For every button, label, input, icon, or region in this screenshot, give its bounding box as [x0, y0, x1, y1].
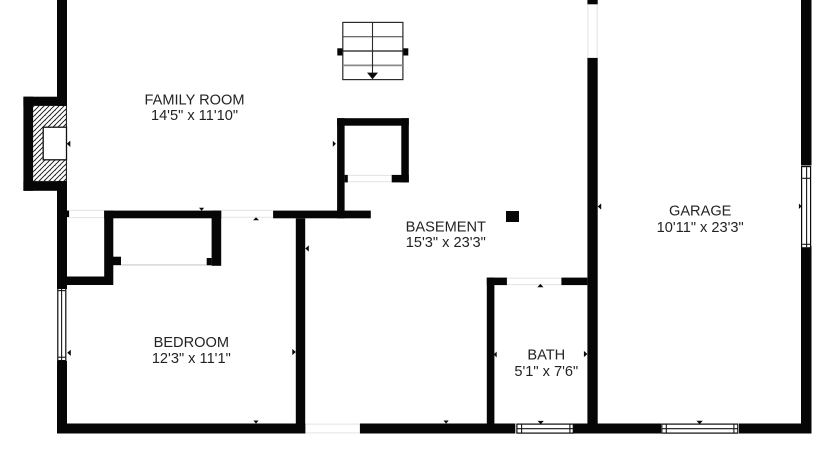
svg-text:14'5" x 11'10": 14'5" x 11'10" — [151, 108, 238, 124]
svg-text:10'11" x 23'3": 10'11" x 23'3" — [657, 220, 744, 236]
svg-text:GARAGE: GARAGE — [669, 204, 732, 220]
svg-text:5'1" x 7'6": 5'1" x 7'6" — [514, 364, 578, 380]
svg-text:BEDROOM: BEDROOM — [154, 335, 229, 351]
svg-text:BASEMENT: BASEMENT — [406, 219, 486, 235]
svg-text:15'3" x 23'3": 15'3" x 23'3" — [406, 235, 486, 251]
svg-text:FAMILY ROOM: FAMILY ROOM — [144, 92, 244, 108]
svg-text:12'3" x 11'1": 12'3" x 11'1" — [152, 351, 231, 367]
svg-text:BATH: BATH — [527, 347, 565, 363]
